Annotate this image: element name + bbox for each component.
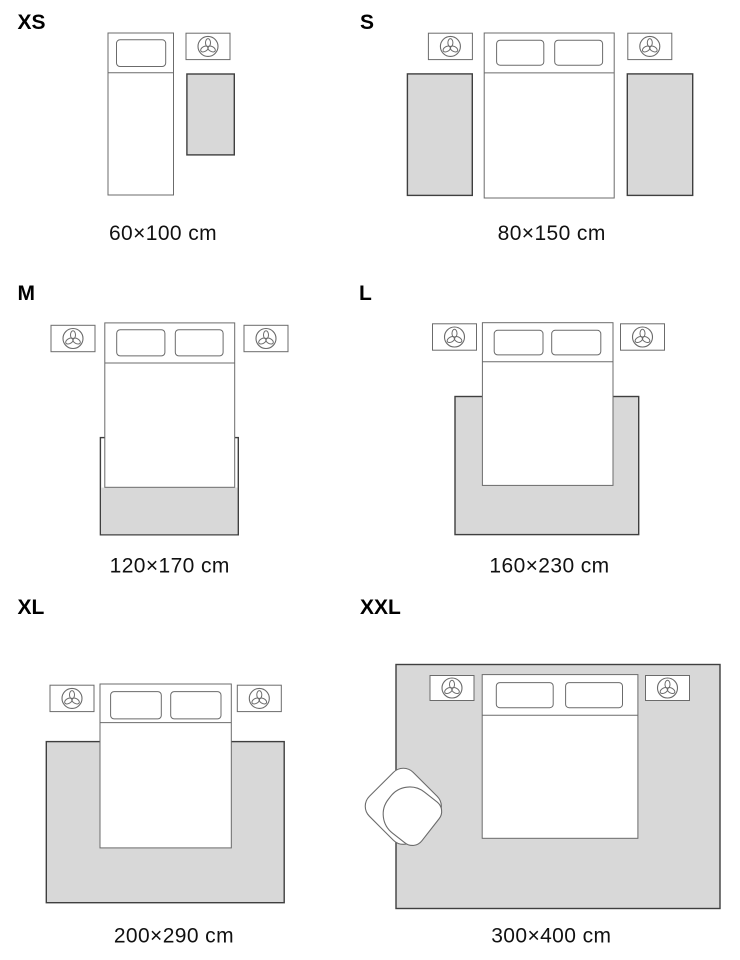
svg-text:S: S	[360, 11, 374, 34]
svg-text:160×230 cm: 160×230 cm	[489, 555, 609, 578]
svg-text:L: L	[359, 282, 372, 305]
svg-text:XXL: XXL	[360, 596, 401, 619]
svg-text:120×170 cm: 120×170 cm	[110, 555, 230, 578]
svg-text:XS: XS	[18, 11, 46, 34]
svg-text:60×100 cm: 60×100 cm	[109, 222, 217, 245]
svg-text:M: M	[18, 282, 36, 305]
svg-text:XL: XL	[18, 596, 45, 619]
svg-text:200×290 cm: 200×290 cm	[114, 925, 234, 948]
svg-text:300×400 cm: 300×400 cm	[491, 925, 611, 948]
svg-text:80×150 cm: 80×150 cm	[498, 222, 606, 245]
